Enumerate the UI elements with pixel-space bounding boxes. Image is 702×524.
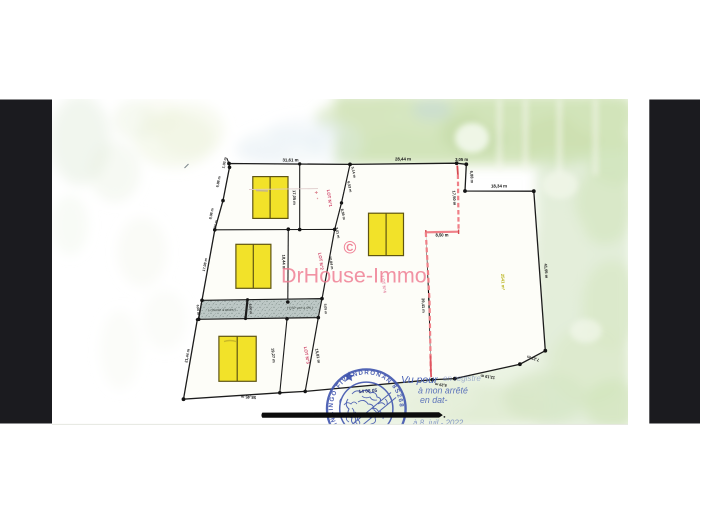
svg-text:17,05 m: 17,05 m — [292, 190, 298, 205]
svg-text:17,50 m: 17,50 m — [451, 190, 457, 205]
svg-text:Vu pour: Vu pour — [401, 374, 438, 386]
svg-text:( chemin d'accès ): ( chemin d'accès ) — [208, 308, 235, 312]
svg-text:8,08 m: 8,08 m — [208, 208, 214, 220]
svg-text:39,41 m: 39,41 m — [421, 298, 427, 313]
svg-text:6,88 m: 6,88 m — [215, 176, 221, 188]
svg-text:18,34 m: 18,34 m — [491, 184, 507, 189]
svg-text:41,95 m: 41,95 m — [543, 263, 549, 278]
svg-text:( ESP vert à 4% ): ( ESP vert à 4% ) — [287, 306, 313, 310]
svg-text:3,05 m: 3,05 m — [455, 157, 468, 162]
svg-text:à mon arrêté: à mon arrêté — [418, 386, 468, 396]
svg-text:en registre: en registre — [443, 374, 481, 383]
svg-text:28,44 m: 28,44 m — [395, 157, 411, 162]
svg-text:5,05 m: 5,05 m — [323, 304, 328, 315]
svg-text:6,88 m: 6,88 m — [469, 171, 475, 184]
svg-text:©: © — [344, 238, 357, 258]
svg-text:6,00 m: 6,00 m — [196, 305, 201, 316]
svg-text:31,61 m: 31,61 m — [282, 158, 298, 163]
svg-text:1,03 m: 1,03 m — [221, 157, 227, 169]
svg-text:6,00 m: 6,00 m — [248, 304, 253, 315]
svg-text:DrHouse-Immo: DrHouse-Immo — [281, 264, 427, 288]
svg-text:en dat-: en dat- — [420, 395, 447, 405]
svg-text:à 8. juil - 2022: à 8. juil - 2022 — [413, 419, 464, 428]
svg-text:8,50 m: 8,50 m — [435, 233, 448, 238]
svg-text:2541 m²: 2541 m² — [500, 274, 506, 291]
